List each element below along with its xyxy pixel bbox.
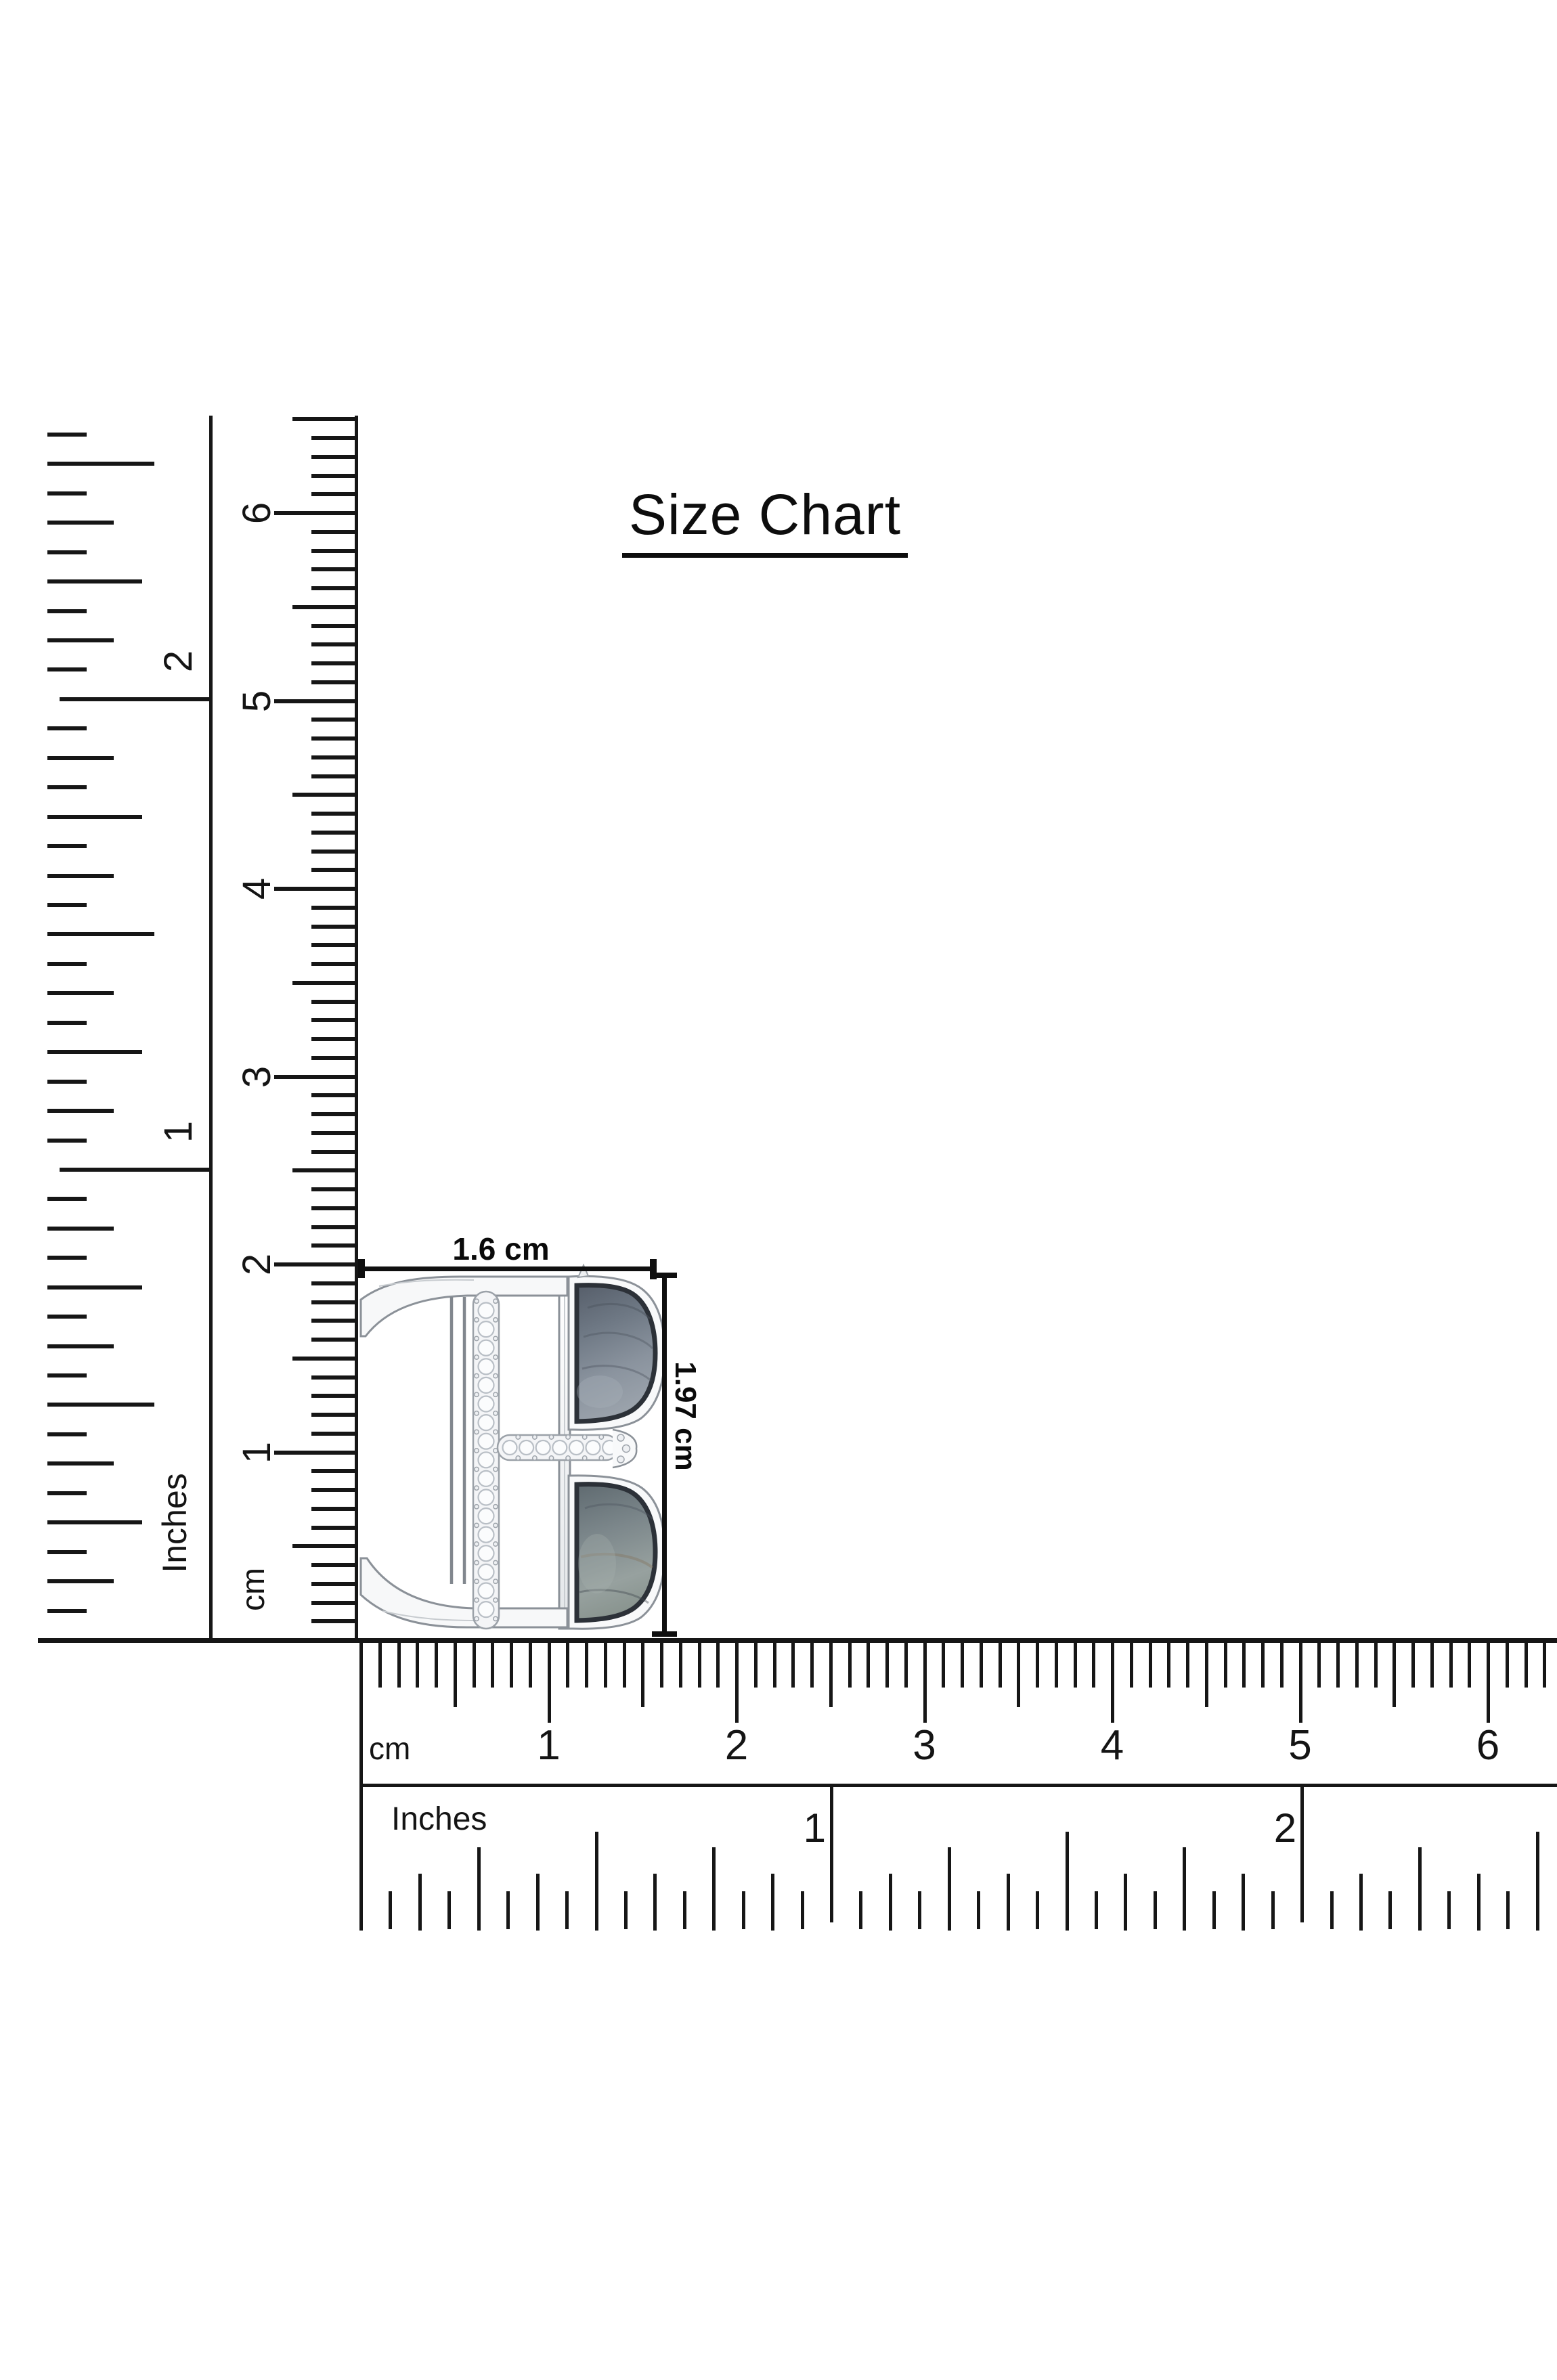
horizontal-cm-tick (867, 1643, 870, 1688)
pave-stone (479, 1396, 494, 1412)
horizontal-cm-tick-label: 6 (1461, 1721, 1515, 1769)
vertical-inch-tick (47, 462, 154, 466)
vertical-inch-tick (47, 667, 87, 671)
horizontal-inch-tick (712, 1847, 716, 1931)
vertical-cm-tick (292, 793, 358, 797)
horizontal-inch-tick (536, 1874, 540, 1931)
width-dimension-label: 1.6 cm (433, 1231, 569, 1267)
pave-stone (479, 1434, 494, 1449)
horizontal-inch-tick (830, 1787, 833, 1922)
horizontal-cm-tick (735, 1643, 739, 1723)
horizontal-cm-ruler-spine (38, 1638, 1557, 1643)
horizontal-cm-tick (510, 1643, 513, 1688)
horizontal-cm-tick (1525, 1643, 1528, 1688)
pave-prong-bead (475, 1579, 479, 1583)
horizontal-inch-tick-label: 2 (1240, 1805, 1296, 1851)
horizontal-inch-tick (477, 1847, 481, 1931)
pave-stone (479, 1415, 494, 1430)
pave-prong-bead (583, 1456, 587, 1460)
vertical-inch-tick (47, 1021, 87, 1025)
vertical-cm-tick (311, 943, 358, 947)
pave-prong-bead (494, 1505, 498, 1509)
horizontal-inch-tick (1418, 1847, 1422, 1931)
pave-prong-bead (475, 1449, 479, 1453)
pave-prong-bead (475, 1560, 479, 1564)
horizontal-inch-tick-label: 1 (769, 1805, 826, 1851)
horizontal-cm-tick (660, 1643, 663, 1688)
vertical-cm-tick (311, 1413, 358, 1417)
pave-prong-bead (475, 1355, 479, 1359)
vertical-inch-tick (47, 579, 142, 583)
size-chart-page: Size Chart Inches cm cm Inches 123456121… (0, 0, 1557, 2380)
pave-stone (479, 1527, 494, 1543)
vertical-cm-tick (311, 436, 358, 440)
vertical-inch-tick (47, 844, 87, 848)
width-dimension-line (363, 1266, 654, 1271)
horizontal-cm-tick (716, 1643, 720, 1688)
vertical-cm-tick (311, 1526, 358, 1530)
vertical-cm-tick (311, 1469, 358, 1473)
horizontal-inch-tick (1242, 1874, 1245, 1931)
vertical-inch-tick (47, 433, 87, 437)
horizontal-cm-tick (1092, 1643, 1095, 1688)
vertical-inch-tick (47, 1050, 142, 1054)
vertical-inch-tick (47, 932, 154, 936)
vertical-cm-unit-label: cm (236, 1549, 271, 1630)
vertical-inch-tick (47, 1520, 142, 1524)
horizontal-cm-tick (1055, 1643, 1058, 1688)
vertical-inch-tick (47, 991, 114, 995)
horizontal-inch-tick (977, 1891, 980, 1929)
pave-prong-bead (475, 1542, 479, 1546)
vertical-cm-tick (274, 1451, 358, 1455)
vertical-cm-tick-label: 6 (236, 491, 279, 535)
vertical-cm-tick (311, 1150, 358, 1154)
vertical-inch-tick (47, 1197, 87, 1201)
vertical-cm-tick (311, 1394, 358, 1398)
pave-prong-bead (475, 1505, 479, 1509)
horizontal-cm-tick (942, 1643, 945, 1688)
vertical-cm-tick (292, 1544, 358, 1548)
vertical-cm-tick (311, 530, 358, 534)
horizontal-cm-tick (980, 1643, 983, 1688)
horizontal-inch-tick (1124, 1874, 1127, 1931)
pave-stone (479, 1321, 494, 1337)
horizontal-cm-tick (566, 1643, 569, 1688)
pave-prong-bead (494, 1336, 498, 1340)
pave-prong-bead (494, 1467, 498, 1471)
vertical-cm-tick-label: 5 (236, 680, 279, 723)
horizontal-cm-tick (1017, 1643, 1020, 1707)
vertical-inch-tick (47, 903, 87, 907)
horizontal-cm-tick (491, 1643, 494, 1688)
horizontal-cm-tick (848, 1643, 852, 1688)
vertical-cm-tick (311, 1432, 358, 1436)
pave-stone (479, 1471, 494, 1486)
pave-stone (586, 1440, 600, 1455)
vertical-cm-tick (311, 1056, 358, 1060)
horizontal-cm-tick (1130, 1643, 1133, 1688)
vertical-cm-tick (311, 1507, 358, 1511)
horizontal-cm-tick (397, 1643, 401, 1688)
horizontal-cm-tick (1074, 1643, 1077, 1688)
pave-prong-bead (494, 1373, 498, 1378)
vertical-inch-tick (47, 1579, 114, 1583)
vertical-cm-tick (311, 736, 358, 741)
vertical-inch-tick (60, 697, 212, 701)
horizontal-cm-tick (1280, 1643, 1284, 1688)
ruler-layer: Inches cm cm Inches 1234561212345612 (0, 0, 1557, 2380)
height-dimension-cap-bottom (652, 1631, 677, 1637)
horizontal-cm-tick (1242, 1643, 1246, 1688)
vertical-cm-tick (311, 1488, 358, 1492)
horizontal-inch-ruler-spine (359, 1784, 1557, 1787)
horizontal-cm-tick (999, 1643, 1002, 1688)
pave-prong-bead (516, 1435, 520, 1439)
vertical-inch-tick (47, 638, 114, 642)
horizontal-inch-tick (1536, 1832, 1539, 1931)
vertical-cm-tick (311, 1225, 358, 1229)
pave-prong-bead (475, 1430, 479, 1434)
vertical-inch-tick-label: 1 (157, 1110, 200, 1153)
vertical-cm-tick (274, 887, 358, 891)
horizontal-cm-tick (604, 1643, 607, 1688)
vertical-cm-tick (311, 1206, 358, 1210)
pave-stone (479, 1359, 494, 1374)
horizontal-cm-tick (1506, 1643, 1509, 1688)
horizontal-cm-tick (923, 1643, 927, 1723)
vertical-inch-tick (47, 1256, 87, 1260)
vertical-cm-tick (274, 1262, 358, 1266)
vertical-inch-tick (47, 550, 87, 554)
vertical-inch-tick (47, 1609, 87, 1613)
horizontal-inch-tick (1183, 1847, 1186, 1931)
vertical-cm-tick (311, 661, 358, 665)
horizontal-inch-tick (1388, 1891, 1392, 1929)
vertical-inch-unit-label: Inches (156, 1442, 194, 1604)
vertical-cm-tick (311, 1582, 358, 1586)
vertical-cm-tick (311, 1018, 358, 1022)
horizontal-cm-tick (810, 1643, 814, 1688)
vertical-inch-tick (47, 726, 87, 730)
vertical-inch-tick (47, 491, 87, 495)
pave-prong-bead (494, 1392, 498, 1396)
vertical-inch-tick (47, 1461, 114, 1466)
horizontal-inch-tick (506, 1891, 510, 1929)
horizontal-cm-tick (454, 1643, 457, 1707)
pave-prong-bead (475, 1299, 479, 1303)
horizontal-cm-tick (904, 1643, 908, 1688)
horizontal-inch-tick (1359, 1874, 1363, 1931)
pave-prong-bead (549, 1435, 553, 1439)
vertical-cm-tick (311, 455, 358, 459)
pave-prong-bead (475, 1411, 479, 1415)
horizontal-cm-tick (548, 1643, 551, 1723)
vertical-cm-tick (311, 718, 358, 722)
horizontal-cm-tick (885, 1643, 889, 1688)
vertical-cm-tick-label: 1 (236, 1431, 279, 1474)
pave-stone (479, 1378, 494, 1393)
vertical-cm-tick (311, 831, 358, 835)
horizontal-cm-tick (1186, 1643, 1189, 1688)
horizontal-inch-tick (1154, 1891, 1157, 1929)
pave-prong-bead (475, 1486, 479, 1490)
horizontal-cm-tick (961, 1643, 964, 1688)
horizontal-inch-tick (1007, 1874, 1010, 1931)
horizontal-inch-tick (1095, 1891, 1098, 1929)
horizontal-cm-tick (1449, 1643, 1453, 1688)
vertical-cm-tick (292, 981, 358, 985)
horizontal-cm-tick (829, 1643, 833, 1707)
horizontal-inch-unit-label: Inches (391, 1801, 487, 1838)
horizontal-inch-tick (801, 1891, 804, 1929)
vertical-cm-tick (311, 1131, 358, 1135)
pave-prong-bead (599, 1435, 603, 1439)
horizontal-inch-tick (918, 1891, 921, 1929)
vertical-cm-tick (311, 567, 358, 571)
vertical-inch-tick (47, 1315, 87, 1319)
horizontal-cm-tick (378, 1643, 382, 1688)
pave-stone (479, 1490, 494, 1505)
vertical-cm-tick (292, 417, 358, 421)
horizontal-inch-tick (859, 1891, 862, 1929)
horizontal-cm-tick (623, 1643, 626, 1688)
horizontal-inch-tick (389, 1891, 392, 1929)
pave-stone (552, 1440, 567, 1455)
height-dimension-line (662, 1275, 667, 1634)
vertical-cm-tick (311, 474, 358, 478)
vertical-cm-tick (311, 1093, 358, 1097)
vertical-cm-tick (311, 549, 358, 553)
horizontal-inch-tick (418, 1874, 422, 1931)
horizontal-cm-tick (1224, 1643, 1227, 1688)
horizontal-cm-tick (754, 1643, 758, 1688)
vertical-inch-tick (47, 1403, 154, 1407)
horizontal-inch-tick (624, 1891, 628, 1929)
horizontal-cm-tick (585, 1643, 588, 1688)
horizontal-inch-tick (565, 1891, 569, 1929)
horizontal-cm-tick (473, 1643, 476, 1688)
pave-prong-bead (533, 1435, 537, 1439)
bottom-rulers-left-edge (359, 1640, 363, 1931)
vertical-cm-tick (311, 1375, 358, 1380)
horizontal-cm-tick-label: 1 (522, 1721, 576, 1769)
height-dimension-label: 1.97 cm (670, 1342, 701, 1491)
horizontal-inch-tick (948, 1847, 951, 1931)
horizontal-inch-tick (1212, 1891, 1216, 1929)
vertical-cm-tick (311, 962, 358, 966)
vertical-cm-tick (274, 699, 358, 703)
horizontal-cm-tick (416, 1643, 419, 1688)
horizontal-cm-tick (773, 1643, 776, 1688)
pave-stone (536, 1440, 550, 1455)
vertical-cm-tick (311, 1000, 358, 1004)
horizontal-cm-tick (1261, 1643, 1265, 1688)
vertical-cm-tick-label: 4 (236, 867, 279, 910)
vertical-cm-tick (311, 1601, 358, 1605)
vertical-inch-tick (47, 1491, 87, 1495)
horizontal-cm-tick (1411, 1643, 1415, 1688)
pendant-thin-bars (452, 1297, 464, 1584)
pave-diamond-strip (473, 1292, 499, 1629)
pave-prong-bead (533, 1456, 537, 1460)
vertical-inch-tick (47, 874, 114, 878)
vertical-inch-tick (47, 1227, 114, 1231)
pave-prong-bead (475, 1598, 479, 1602)
horizontal-inch-tick (653, 1874, 657, 1931)
vertical-inch-tick (47, 756, 114, 760)
horizontal-inch-tick (1447, 1891, 1451, 1929)
pave-stone (519, 1440, 533, 1455)
vertical-inch-tick-label: 2 (157, 640, 200, 683)
vertical-cm-tick (311, 868, 358, 872)
vertical-cm-tick (311, 1338, 358, 1342)
pave-prong-bead (475, 1318, 479, 1322)
horizontal-cm-tick (1468, 1643, 1471, 1688)
vertical-cm-tick (311, 586, 358, 590)
pave-prong-bead (475, 1467, 479, 1471)
pave-prong-bead (599, 1456, 603, 1460)
horizontal-cm-tick (1036, 1643, 1039, 1688)
pave-prong-bead (494, 1411, 498, 1415)
vertical-cm-tick (311, 755, 358, 759)
horizontal-inch-tick (1477, 1874, 1481, 1931)
horizontal-cm-tick (1374, 1643, 1378, 1688)
vertical-cm-tick (311, 642, 358, 646)
pave-stone (479, 1564, 494, 1580)
pave-prong-bead (583, 1435, 587, 1439)
vertical-inch-tick (47, 1550, 87, 1554)
pave-prong-bead (566, 1435, 570, 1439)
vertical-cm-tick (311, 812, 358, 816)
vertical-inch-tick (47, 785, 87, 789)
vertical-inch-tick (47, 1344, 114, 1348)
height-dimension-cap-top (652, 1273, 677, 1278)
vertical-cm-tick (311, 1563, 358, 1567)
horizontal-inch-tick (889, 1874, 892, 1931)
horizontal-inch-tick (1506, 1891, 1510, 1929)
horizontal-cm-tick (679, 1643, 682, 1688)
horizontal-cm-tick (1167, 1643, 1170, 1688)
pave-stone (479, 1508, 494, 1524)
pave-stone (479, 1452, 494, 1468)
vertical-inch-tick (47, 609, 87, 613)
pave-prong-bead (494, 1523, 498, 1527)
vertical-cm-tick (311, 1281, 358, 1285)
vertical-cm-tick (274, 511, 358, 515)
vertical-cm-tick (311, 1319, 358, 1323)
pave-stone (479, 1545, 494, 1561)
horizontal-cm-tick (1149, 1643, 1152, 1688)
horizontal-inch-tick (683, 1891, 686, 1929)
vertical-inch-tick (47, 1432, 87, 1436)
horizontal-cm-tick-label: 2 (709, 1721, 764, 1769)
horizontal-cm-tick (1205, 1643, 1208, 1707)
pave-prong-bead (475, 1616, 479, 1621)
lower-gem-lobe (569, 1476, 665, 1629)
pave-prong-bead (494, 1542, 498, 1546)
pave-stone (479, 1303, 494, 1319)
vertical-cm-tick (311, 624, 358, 628)
horizontal-cm-tick-label: 4 (1085, 1721, 1139, 1769)
pave-prong-bead (494, 1579, 498, 1583)
pave-prong-bead (494, 1355, 498, 1359)
horizontal-cm-tick (1430, 1643, 1434, 1688)
horizontal-cm-tick (435, 1643, 438, 1688)
pave-stone (479, 1340, 494, 1356)
horizontal-inch-tick (1036, 1891, 1039, 1929)
horizontal-inch-tick (742, 1891, 745, 1929)
pave-prong-bead (494, 1318, 498, 1322)
vertical-inch-tick (47, 1139, 87, 1143)
vertical-inch-tick (60, 1168, 212, 1172)
pave-prong-bead (516, 1456, 520, 1460)
horizontal-cm-tick (1392, 1643, 1396, 1707)
pave-stone (479, 1583, 494, 1599)
horizontal-cm-tick-label: 5 (1273, 1721, 1328, 1769)
pave-prong-bead (494, 1299, 498, 1303)
horizontal-cm-tick (698, 1643, 701, 1688)
vertical-cm-tick (292, 1168, 358, 1172)
horizontal-cm-tick (1299, 1643, 1302, 1723)
horizontal-cm-tick (529, 1643, 532, 1688)
pave-stone (479, 1602, 494, 1617)
horizontal-cm-tick (1336, 1643, 1340, 1688)
horizontal-inch-tick (1271, 1891, 1275, 1929)
vertical-cm-tick (311, 850, 358, 854)
horizontal-inch-tick (447, 1891, 451, 1929)
horizontal-cm-tick (1487, 1643, 1490, 1723)
vertical-cm-tick (311, 492, 358, 496)
horizontal-cm-tick (1543, 1643, 1546, 1688)
horizontal-inch-tick (595, 1832, 598, 1931)
pave-prong-bead (494, 1598, 498, 1602)
horizontal-cm-tick (1317, 1643, 1321, 1688)
horizontal-cm-tick (1355, 1643, 1359, 1688)
vertical-cm-tick (311, 680, 358, 684)
vertical-inch-tick (47, 815, 142, 819)
horizontal-cm-tick (791, 1643, 795, 1688)
vertical-inch-tick (47, 1109, 114, 1113)
vertical-cm-tick (311, 906, 358, 910)
pave-stone (569, 1440, 584, 1455)
pave-prong-bead (549, 1456, 553, 1460)
vertical-cm-tick (311, 1187, 358, 1191)
pave-prong-bead (494, 1560, 498, 1564)
horizontal-cm-unit-label: cm (369, 1730, 410, 1767)
vertical-cm-tick-label: 3 (236, 1055, 279, 1099)
vertical-inch-tick (47, 962, 87, 966)
vertical-cm-tick (311, 1037, 358, 1041)
vertical-cm-tick-label: 2 (236, 1243, 279, 1286)
horizontal-inch-tick (1330, 1891, 1334, 1929)
vertical-inch-tick (47, 1373, 87, 1378)
jewelry-illustration (352, 1256, 677, 1641)
vertical-cm-tick (311, 774, 358, 778)
horizontal-cm-tick (1111, 1643, 1114, 1723)
vertical-cm-tick (311, 1243, 358, 1248)
vertical-cm-tick (292, 1357, 358, 1361)
vertical-cm-tick (311, 1619, 358, 1623)
width-dimension-cap-left (358, 1259, 365, 1278)
horizontal-inch-tick (1066, 1832, 1069, 1931)
vertical-cm-tick (311, 1300, 358, 1304)
vertical-cm-tick (274, 1075, 358, 1079)
horizontal-cm-tick (641, 1643, 644, 1707)
pave-prong-bead (494, 1430, 498, 1434)
vertical-inch-ruler-spine (209, 416, 213, 1642)
vertical-cm-tick (311, 1112, 358, 1116)
